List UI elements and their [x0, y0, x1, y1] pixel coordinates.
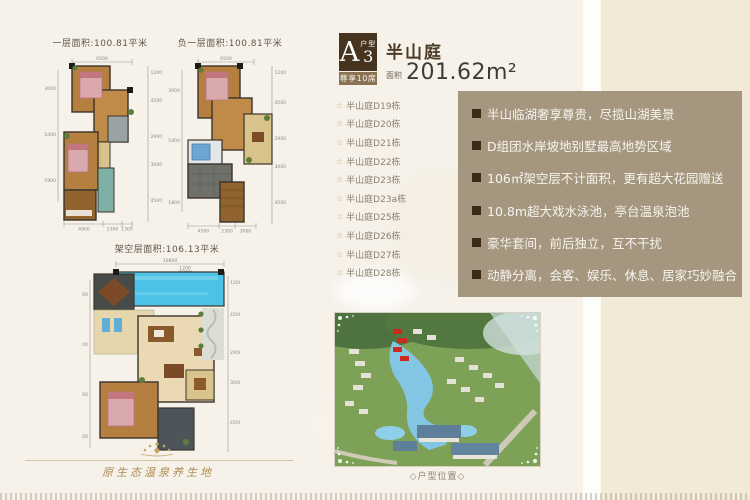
svg-text:5900: 5900	[82, 392, 88, 398]
feature-text: 半山临湖奢享尊贵，尽揽山湖美景	[487, 104, 675, 123]
star-icon: ☆	[336, 157, 343, 166]
building-name: 半山庭D28栋	[346, 266, 400, 279]
svg-text:3000: 3000	[230, 380, 240, 386]
svg-text:4500: 4500	[151, 198, 163, 204]
svg-text:4900: 4900	[78, 227, 90, 233]
crown-ornament-icon	[136, 440, 178, 458]
svg-text:2300: 2300	[107, 227, 119, 233]
svg-text:1200: 1200	[179, 266, 191, 272]
plan2-floorplan: 6500 1200 4500 2900 3000 4500 3000 5400 …	[168, 52, 290, 237]
feature-item: 动静分离，会客、娱乐、休息、居家巧妙融合	[472, 265, 728, 284]
feature-item: D组团水岸坡地别墅最高地势区域	[472, 136, 728, 155]
building-name: 半山庭D27栋	[346, 248, 400, 261]
bullet-square-icon	[472, 173, 481, 182]
star-icon: ☆	[336, 212, 343, 221]
feature-item: 豪华套间，前后独立，互不干扰	[472, 233, 728, 252]
feature-text: 106㎡架空层不计面积，更有超大花园赠送	[487, 168, 723, 187]
exclusive-count-badge: 尊享10席	[339, 72, 377, 85]
building-list-item: ☆半山庭D20栋	[336, 115, 406, 134]
svg-text:4500: 4500	[275, 200, 287, 206]
building-name: 半山庭D23栋	[346, 173, 400, 186]
building-list-item: ☆半山庭D23栋	[336, 170, 406, 189]
feature-item: 10.8m超大戏水泳池，亭台温泉泡池	[472, 201, 728, 220]
bullet-square-icon	[472, 109, 481, 118]
building-list: ☆半山庭D19栋 ☆半山庭D20栋 ☆半山庭D21栋 ☆半山庭D22栋 ☆半山庭…	[336, 96, 406, 282]
building-name: 半山庭D19栋	[346, 99, 400, 112]
star-icon: ☆	[336, 175, 343, 184]
features-panel: 半山临湖奢享尊贵，尽揽山湖美景 D组团水岸坡地别墅最高地势区域 106㎡架空层不…	[458, 91, 742, 297]
star-icon: ☆	[336, 119, 343, 128]
star-icon: ☆	[336, 268, 343, 277]
svg-text:2900: 2900	[230, 350, 240, 356]
svg-text:3000: 3000	[44, 86, 56, 92]
lounger	[114, 318, 122, 332]
building-list-item: ☆半山庭D19栋	[336, 96, 406, 115]
feature-item: 106㎡架空层不计面积，更有超大花园赠送	[472, 168, 728, 187]
unit-type-badge: A 户型 3 尊享10席	[339, 33, 377, 85]
star-icon: ☆	[336, 101, 343, 110]
star-icon: ☆	[336, 250, 343, 259]
building-name: 半山庭D23a栋	[346, 192, 406, 205]
site-caption: ◇户型位置◇	[335, 469, 540, 482]
area-value: 201.62m²	[406, 60, 517, 85]
svg-text:4500: 4500	[230, 312, 240, 318]
building-list-item: ☆半山庭D23a栋	[336, 189, 406, 208]
svg-text:10800: 10800	[163, 258, 178, 264]
svg-text:1200: 1200	[151, 70, 163, 76]
area-label: 面积	[386, 70, 402, 81]
building-name: 半山庭D21栋	[346, 136, 400, 149]
svg-text:3000: 3000	[168, 88, 180, 94]
building-list-item: ☆半山庭D27栋	[336, 245, 406, 264]
svg-text:1300: 1300	[121, 227, 133, 233]
svg-text:1800: 1800	[168, 200, 180, 206]
svg-text:3000: 3000	[151, 162, 163, 168]
svg-text:4500: 4500	[198, 229, 210, 235]
building-name: 半山庭D20栋	[346, 117, 400, 130]
building-list-item: ☆半山庭D21栋	[336, 133, 406, 152]
svg-text:4500: 4500	[230, 420, 240, 426]
feature-text: 10.8m超大戏水泳池，亭台温泉泡池	[487, 201, 690, 220]
svg-text:1800: 1800	[82, 434, 88, 440]
svg-text:3000: 3000	[240, 229, 252, 235]
star-icon: ☆	[336, 194, 343, 203]
svg-text:3000: 3000	[82, 292, 88, 298]
plan3-floorplan: 10800 1200 1200 4500 2900 3000 4500 3000…	[82, 252, 240, 462]
bullet-square-icon	[472, 238, 481, 247]
bed	[192, 144, 210, 160]
unit-type-code: A 户型 3	[339, 33, 377, 71]
svg-text:2900: 2900	[275, 136, 287, 142]
building-name: 半山庭D22栋	[346, 155, 400, 168]
plan2-title: 负一层面积:100.81平米	[168, 36, 292, 49]
area-row: 面积 201.62m²	[386, 60, 517, 85]
unit-type-number: 3	[363, 49, 373, 65]
svg-text:4500: 4500	[275, 100, 287, 106]
plan1-title: 一层面积:100.81平米	[40, 36, 160, 49]
bullet-square-icon	[472, 270, 481, 279]
building-name: 半山庭D26栋	[346, 229, 400, 242]
svg-text:5400: 5400	[44, 132, 56, 138]
building-list-item: ☆半山庭D22栋	[336, 152, 406, 171]
star-icon: ☆	[336, 231, 343, 240]
svg-text:5400: 5400	[168, 138, 180, 144]
feature-text: 豪华套间，前后独立，互不干扰	[487, 233, 662, 252]
building-name: 半山庭D25栋	[346, 210, 400, 223]
footer-divider-line	[25, 460, 293, 461]
unit-type-letter: A	[340, 39, 360, 66]
svg-text:5400: 5400	[82, 342, 88, 348]
building-list-item: ☆半山庭D26栋	[336, 226, 406, 245]
plan1-floorplan: 6500 1200 4500 2900 3000 4500 3000 5400 …	[44, 52, 166, 232]
svg-text:2300: 2300	[221, 229, 233, 235]
feature-item: 半山临湖奢享尊贵，尽揽山湖美景	[472, 104, 728, 123]
star-icon: ☆	[336, 138, 343, 147]
site-aerial-image	[335, 313, 540, 466]
bullet-square-icon	[472, 206, 481, 215]
svg-text:1200: 1200	[275, 70, 287, 76]
feature-text: 动静分离，会客、娱乐、休息、居家巧妙融合	[487, 265, 737, 284]
svg-text:4500: 4500	[151, 98, 163, 104]
svg-text:5900: 5900	[44, 178, 56, 184]
svg-text:6500: 6500	[220, 56, 232, 62]
building-list-item: ☆半山庭D28栋	[336, 263, 406, 282]
feature-text: D组团水岸坡地别墅最高地势区域	[487, 136, 672, 155]
building-list-item: ☆半山庭D25栋	[336, 208, 406, 227]
svg-text:6500: 6500	[96, 56, 108, 62]
bullet-square-icon	[472, 141, 481, 150]
lounger	[102, 318, 110, 332]
svg-text:2900: 2900	[151, 134, 163, 140]
bottom-fringe-border	[0, 493, 750, 500]
svg-text:1200: 1200	[230, 280, 240, 286]
footer-slogan: 原生态温泉养生地	[40, 464, 276, 480]
svg-text:3000: 3000	[275, 164, 287, 170]
